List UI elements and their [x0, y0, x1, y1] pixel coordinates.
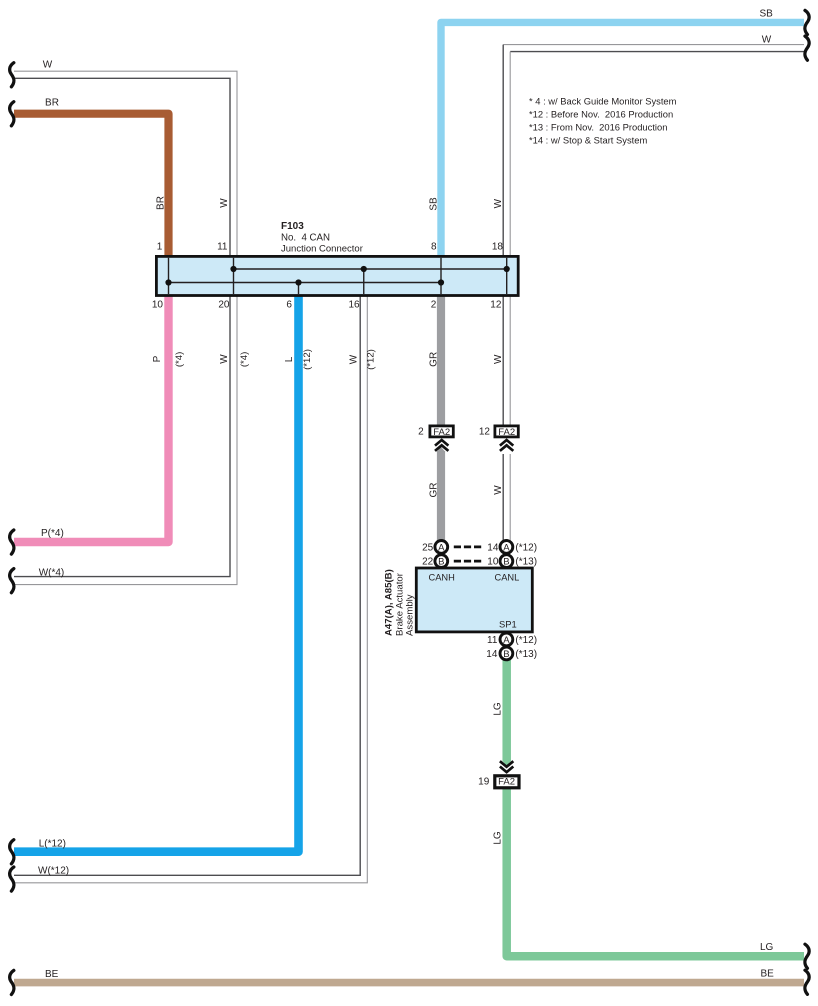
svg-text:P(*4): P(*4): [41, 528, 64, 539]
svg-text:W: W: [493, 198, 504, 208]
svg-text:10: 10: [152, 300, 164, 311]
svg-text:SB: SB: [429, 197, 440, 211]
svg-text:12: 12: [490, 300, 502, 311]
svg-text:Junction Connector: Junction Connector: [281, 243, 363, 254]
svg-text:A: A: [503, 635, 510, 646]
svg-text:GR: GR: [429, 483, 440, 498]
svg-text:1: 1: [157, 241, 163, 252]
svg-text:Assembly: Assembly: [404, 594, 415, 636]
svg-text:W: W: [219, 354, 230, 364]
svg-text:LG: LG: [760, 942, 774, 953]
svg-text:BE: BE: [761, 968, 775, 979]
svg-text:(*12): (*12): [302, 349, 313, 370]
svg-text:A: A: [503, 542, 510, 553]
svg-text:W: W: [493, 354, 504, 364]
svg-text:(*4): (*4): [174, 352, 185, 367]
svg-text:W(*12): W(*12): [38, 866, 69, 877]
svg-text:(*12): (*12): [515, 635, 537, 646]
svg-text:BE: BE: [45, 969, 59, 980]
svg-text:20: 20: [218, 300, 230, 311]
svg-text:L: L: [284, 356, 295, 362]
svg-text:8: 8: [431, 241, 437, 252]
svg-text:SP1: SP1: [499, 618, 517, 629]
svg-text:12: 12: [479, 427, 491, 438]
svg-text:14: 14: [487, 542, 499, 553]
svg-text:* 4 : w/ Back Guide Monitor Sy: * 4 : w/ Back Guide Monitor System: [529, 96, 677, 107]
svg-text:(*12): (*12): [366, 349, 377, 370]
svg-text:W: W: [493, 485, 504, 495]
svg-text:BR: BR: [156, 196, 167, 210]
svg-text:BR: BR: [45, 98, 59, 109]
svg-text:CANL: CANL: [495, 572, 520, 582]
svg-text:16: 16: [348, 300, 360, 311]
svg-text:B: B: [503, 649, 509, 660]
svg-text:SB: SB: [760, 9, 774, 20]
svg-text:11: 11: [217, 241, 228, 252]
svg-text:LG: LG: [493, 702, 504, 716]
svg-text:22: 22: [422, 557, 434, 568]
svg-text:(*13): (*13): [515, 557, 537, 568]
svg-text:W: W: [349, 354, 360, 364]
svg-text:LG: LG: [493, 831, 504, 845]
svg-text:(*13): (*13): [515, 649, 537, 660]
svg-text:No. 4 CAN: No. 4 CAN: [281, 233, 330, 244]
svg-text:2: 2: [431, 300, 437, 311]
svg-text:11: 11: [487, 635, 498, 646]
svg-text:19: 19: [478, 777, 490, 788]
svg-text:*12 : Before Nov. 2016 Produc: *12 : Before Nov. 2016 Production: [529, 109, 673, 120]
svg-text:F103: F103: [281, 221, 304, 232]
svg-text:GR: GR: [429, 352, 440, 367]
svg-text:W: W: [762, 35, 772, 46]
svg-text:(*4): (*4): [239, 352, 250, 367]
svg-text:*13 : From Nov. 2016 Producti: *13 : From Nov. 2016 Production: [529, 122, 667, 133]
svg-text:18: 18: [492, 241, 504, 252]
svg-text:2: 2: [418, 427, 424, 438]
svg-text:L(*12): L(*12): [39, 838, 66, 849]
svg-text:*14 : w/ Stop & Start System: *14 : w/ Stop & Start System: [529, 135, 647, 146]
svg-text:B: B: [438, 557, 444, 568]
svg-text:CANH: CANH: [429, 572, 455, 582]
svg-text:W: W: [219, 198, 230, 208]
svg-text:A47(A), A85(B): A47(A), A85(B): [384, 569, 395, 636]
svg-text:FA2: FA2: [433, 427, 450, 438]
svg-text:10: 10: [487, 557, 499, 568]
svg-text:P: P: [152, 355, 163, 362]
svg-text:FA2: FA2: [498, 777, 515, 788]
svg-text:(*12): (*12): [515, 542, 537, 553]
svg-text:A: A: [438, 542, 445, 553]
svg-text:FA2: FA2: [498, 427, 515, 438]
svg-text:25: 25: [422, 542, 434, 553]
svg-text:W(*4): W(*4): [39, 567, 65, 578]
svg-text:14: 14: [486, 649, 498, 660]
svg-text:6: 6: [286, 300, 292, 311]
svg-text:B: B: [503, 557, 509, 568]
svg-text:W: W: [43, 60, 53, 71]
